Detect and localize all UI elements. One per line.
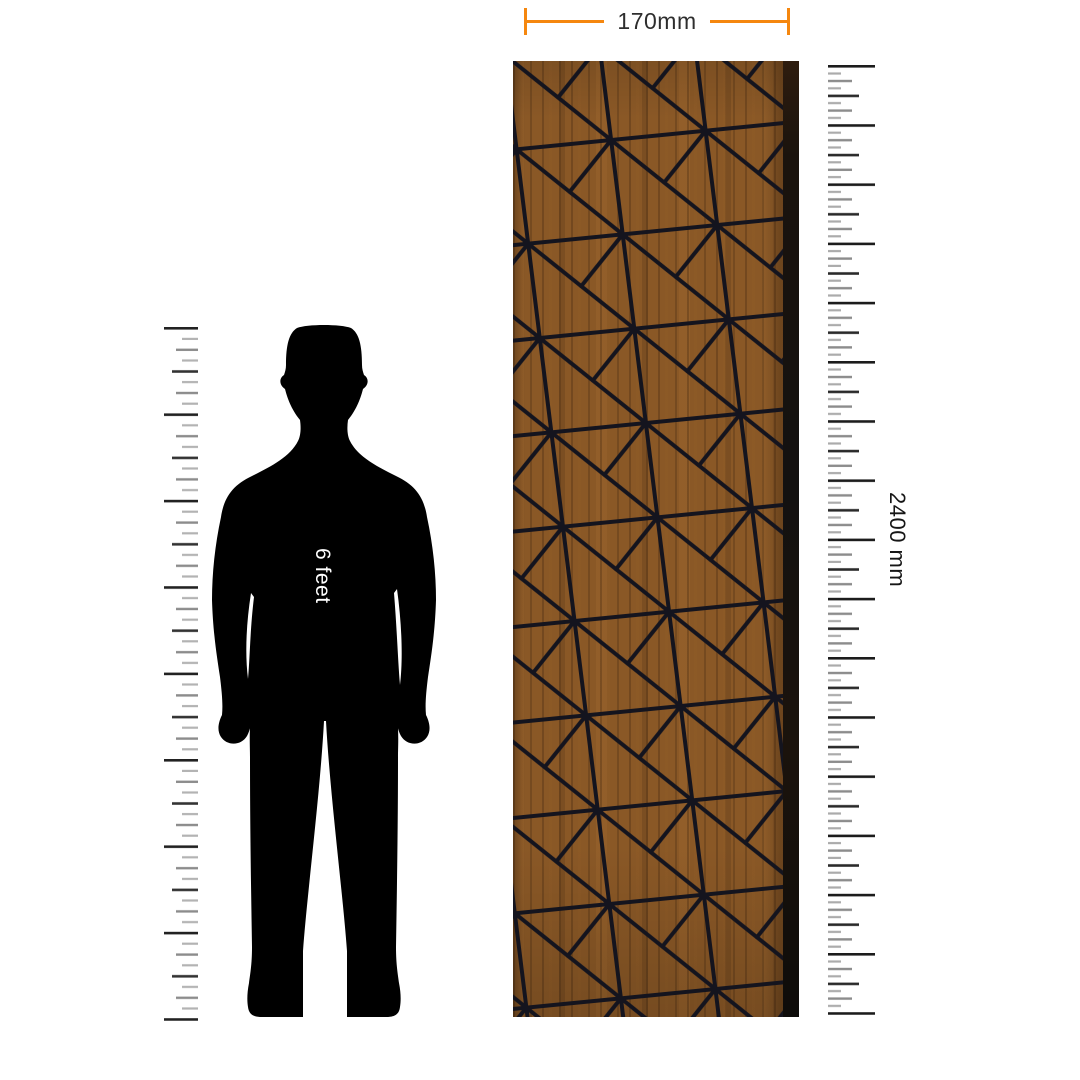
figure-height-ruler [162,327,198,1021]
panel-width-label: 170mm [604,8,709,35]
dimension-cap-right [787,8,790,35]
panel-height-ruler [828,65,878,1015]
panel-geometric-pattern [513,61,783,1017]
figure-height-label: 6 feet [310,548,334,604]
width-dimension: 170mm [524,8,790,35]
dimension-line-right [710,20,787,23]
panel-wood-surface [513,61,783,1017]
product-dimension-illustration: 170mm [0,0,1080,1080]
human-silhouette [210,325,438,1019]
dimension-line-left [527,20,604,23]
panel-edge-shadow [783,61,799,1017]
panel-height-label: 2400 mm [884,492,910,587]
wall-panel [513,61,799,1017]
